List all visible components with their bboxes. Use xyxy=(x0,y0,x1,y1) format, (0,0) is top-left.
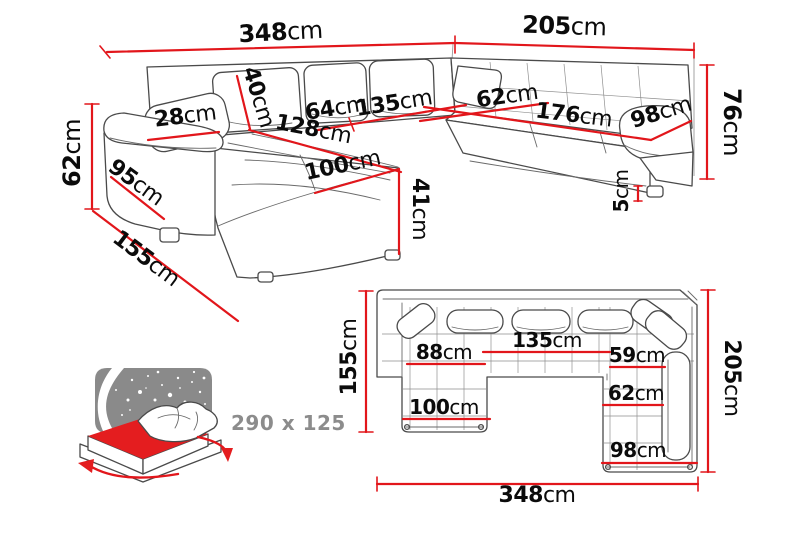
dim-5-unit: cm xyxy=(609,170,633,199)
dim-62s-value: 62 xyxy=(475,84,508,113)
dim-205-value: 205 xyxy=(522,11,572,41)
top-88-unit: cm xyxy=(443,340,472,364)
top-100-value: 100 xyxy=(409,395,449,419)
dim-41-value: 41 xyxy=(407,178,432,208)
dim-label-205: 205cm xyxy=(522,11,607,42)
dim-128-unit: cm xyxy=(317,118,354,149)
dim-label-41: 41cm xyxy=(407,178,432,240)
dim-label-top-59: 59cm xyxy=(609,343,665,367)
dim-76-unit: cm xyxy=(718,120,746,156)
top-view: 155cm 205cm 348cm 88cm 135cm 59cm 62cm 1… xyxy=(337,290,744,508)
top-98-value: 98 xyxy=(610,438,637,462)
left-foot xyxy=(160,228,179,242)
top-62-unit: cm xyxy=(635,381,664,405)
top-100-unit: cm xyxy=(449,395,478,419)
dim-28-value: 28 xyxy=(153,104,185,132)
dim-label-top-98: 98cm xyxy=(610,438,666,462)
dim-label-5: 5cm xyxy=(609,170,633,213)
top-205-unit: cm xyxy=(719,384,744,417)
dim-label-top-348: 348cm xyxy=(499,483,576,508)
right-foot xyxy=(647,186,663,197)
dim-label-top-88: 88cm xyxy=(416,340,472,364)
dim-label-top-62: 62cm xyxy=(608,381,664,405)
dim-348-unit: cm xyxy=(286,16,323,46)
dim-62l-value: 62 xyxy=(58,155,86,187)
top-59-value: 59 xyxy=(609,343,636,367)
top-88-value: 88 xyxy=(416,340,443,364)
top-59-unit: cm xyxy=(636,343,665,367)
top-155-unit: cm xyxy=(337,319,362,352)
top-205-value: 205 xyxy=(719,340,744,384)
top-135-unit: cm xyxy=(552,328,581,352)
right-bolster xyxy=(662,352,690,460)
bed-size-label: 290 x 125 xyxy=(231,411,346,435)
dim-label-top-135: 135cm xyxy=(512,328,582,352)
dim-205-unit: cm xyxy=(570,12,607,41)
dim-line-205 xyxy=(455,43,694,50)
dim-348-value: 348 xyxy=(238,18,288,49)
diagram-canvas: 348cm 205cm 76cm 62cm 28cm 40cm 64cm 135… xyxy=(0,0,800,533)
bed-function-icon: 290 x 125 xyxy=(78,368,346,482)
dim-76-value: 76 xyxy=(718,88,746,120)
top-98-unit: cm xyxy=(637,438,666,462)
dim-label-top-155: 155cm xyxy=(337,319,362,396)
top-62-value: 62 xyxy=(608,381,635,405)
sofa-dimension-diagram: 348cm 205cm 76cm 62cm 28cm 40cm 64cm 135… xyxy=(0,0,800,533)
top-348-value: 348 xyxy=(499,483,543,508)
dim-label-top-205: 205cm xyxy=(719,340,744,417)
dim-176-unit: cm xyxy=(578,104,613,133)
top-135-value: 135 xyxy=(512,328,552,352)
dim-label-top-100: 100cm xyxy=(409,395,479,419)
dim-label-348: 348cm xyxy=(238,16,324,48)
dim-62l-unit: cm xyxy=(58,119,86,155)
dim-5-value: 5 xyxy=(609,199,633,212)
dim-label-62-left: 62cm xyxy=(58,119,86,187)
dim-62s-unit: cm xyxy=(504,80,540,109)
dim-label-76: 76cm xyxy=(718,88,746,156)
dim-41-unit: cm xyxy=(407,208,432,241)
chaise-foot-right xyxy=(385,250,400,260)
top-155-value: 155 xyxy=(337,351,362,395)
dim-135-unit: cm xyxy=(398,85,434,115)
dim-28-unit: cm xyxy=(182,100,217,129)
perspective-view: 348cm 205cm 76cm 62cm 28cm 40cm 64cm 135… xyxy=(58,11,746,321)
chaise-foot-left xyxy=(258,272,273,282)
top-348-unit: cm xyxy=(543,483,576,508)
